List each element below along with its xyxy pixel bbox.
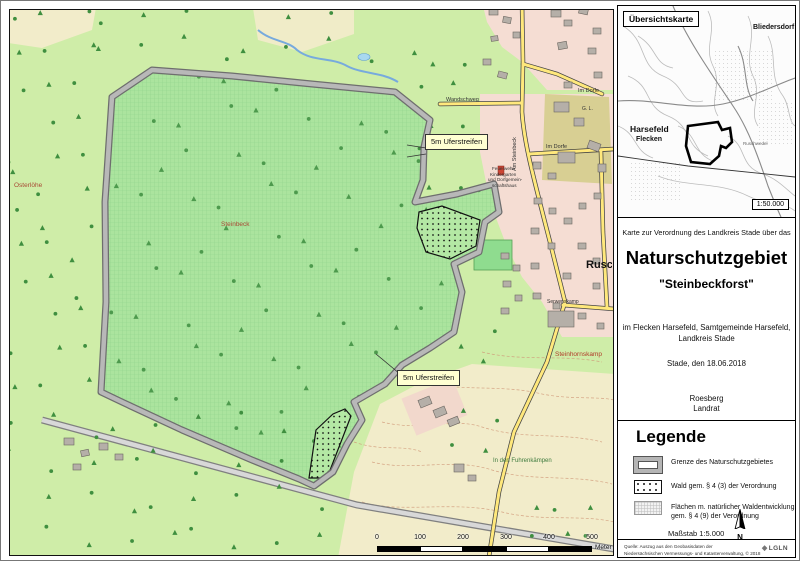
lgln-logo: ◆LGLN (762, 544, 788, 552)
source-text: Quelle: Auszug aus den Geobasisdaten der… (624, 544, 760, 558)
public-building (498, 166, 504, 175)
title-panel: Karte zur Verordnung des Landkreis Stade… (618, 218, 795, 421)
side-panel: Übersichtskarte 1:50.000 Karte zur Veror… (617, 5, 796, 558)
date-line: Stade, den 18.06.2018 (618, 359, 795, 368)
location-line: im Flecken Harsefeld, Samtgemeinde Harse… (622, 323, 791, 344)
legend-items: Grenze des NaturschutzgebietesWald gem. … (634, 456, 795, 521)
overview-map: Übersichtskarte 1:50.000 (618, 6, 795, 218)
legend-label: Wald gem. § 4 (3) der Verordnung (671, 480, 777, 491)
scale-label: Maßstab 1:5.000 (668, 529, 724, 538)
overview-place: Ruschwedel (743, 142, 768, 147)
legend-swatch-boundary (634, 457, 662, 473)
map-sheet: OsterlöheSteinbeckSteinhornskampRuschWan… (0, 0, 800, 561)
legend-swatch-entwicklung (634, 501, 662, 515)
page-title: Naturschutzgebiet (618, 247, 795, 269)
lgln-logo-icon: ◆ (762, 545, 768, 552)
ordinance-intro: Karte zur Verordnung des Landkreis Stade… (620, 228, 793, 237)
overview-place: Flecken (636, 136, 662, 143)
source-note: Quelle: Auszug aus den Geobasisdaten der… (618, 540, 795, 557)
legend-label: Grenze des Naturschutzgebietes (671, 456, 773, 467)
overview-place: Bliedersdorf (753, 24, 794, 31)
signature-title: Landrat (693, 404, 719, 413)
legend-item-boundary: Grenze des Naturschutzgebietes (634, 456, 795, 473)
lgln-logo-text: LGLN (769, 545, 788, 552)
legend-panel: Legende Grenze des NaturschutzgebietesWa… (618, 421, 795, 540)
overview-scale-badge: 1:50.000 (752, 199, 789, 210)
signature-name: Roesberg (690, 394, 724, 403)
reserve-name: "Steinbeckforst" (618, 277, 795, 291)
source-line-2: Niedersächsischen Vermessungs- und Katas… (624, 551, 760, 556)
signature-block: Roesberg Landrat (618, 394, 795, 414)
legend-swatch-wald (634, 480, 662, 494)
legend-item-wald: Wald gem. § 4 (3) der Verordnung (634, 480, 795, 494)
overview-topo (618, 6, 795, 217)
location-line-1: im Flecken Harsefeld, Samtgemeinde Harse… (623, 323, 791, 332)
overview-title-badge: Übersichtskarte (623, 11, 699, 27)
north-arrow: N (730, 507, 750, 542)
legend-item-entwicklung: Flächen m. natürlicher Waldentwicklung g… (634, 501, 795, 521)
main-map (9, 9, 614, 556)
source-line-1: Quelle: Auszug aus den Geobasisdaten der (624, 544, 713, 549)
location-line-2: Landkreis Stade (678, 334, 734, 343)
north-arrow-icon (732, 507, 748, 529)
overview-place: Harsefeld (630, 125, 669, 134)
overview-reserve-outline (686, 122, 732, 164)
legend-heading: Legende (636, 427, 795, 447)
